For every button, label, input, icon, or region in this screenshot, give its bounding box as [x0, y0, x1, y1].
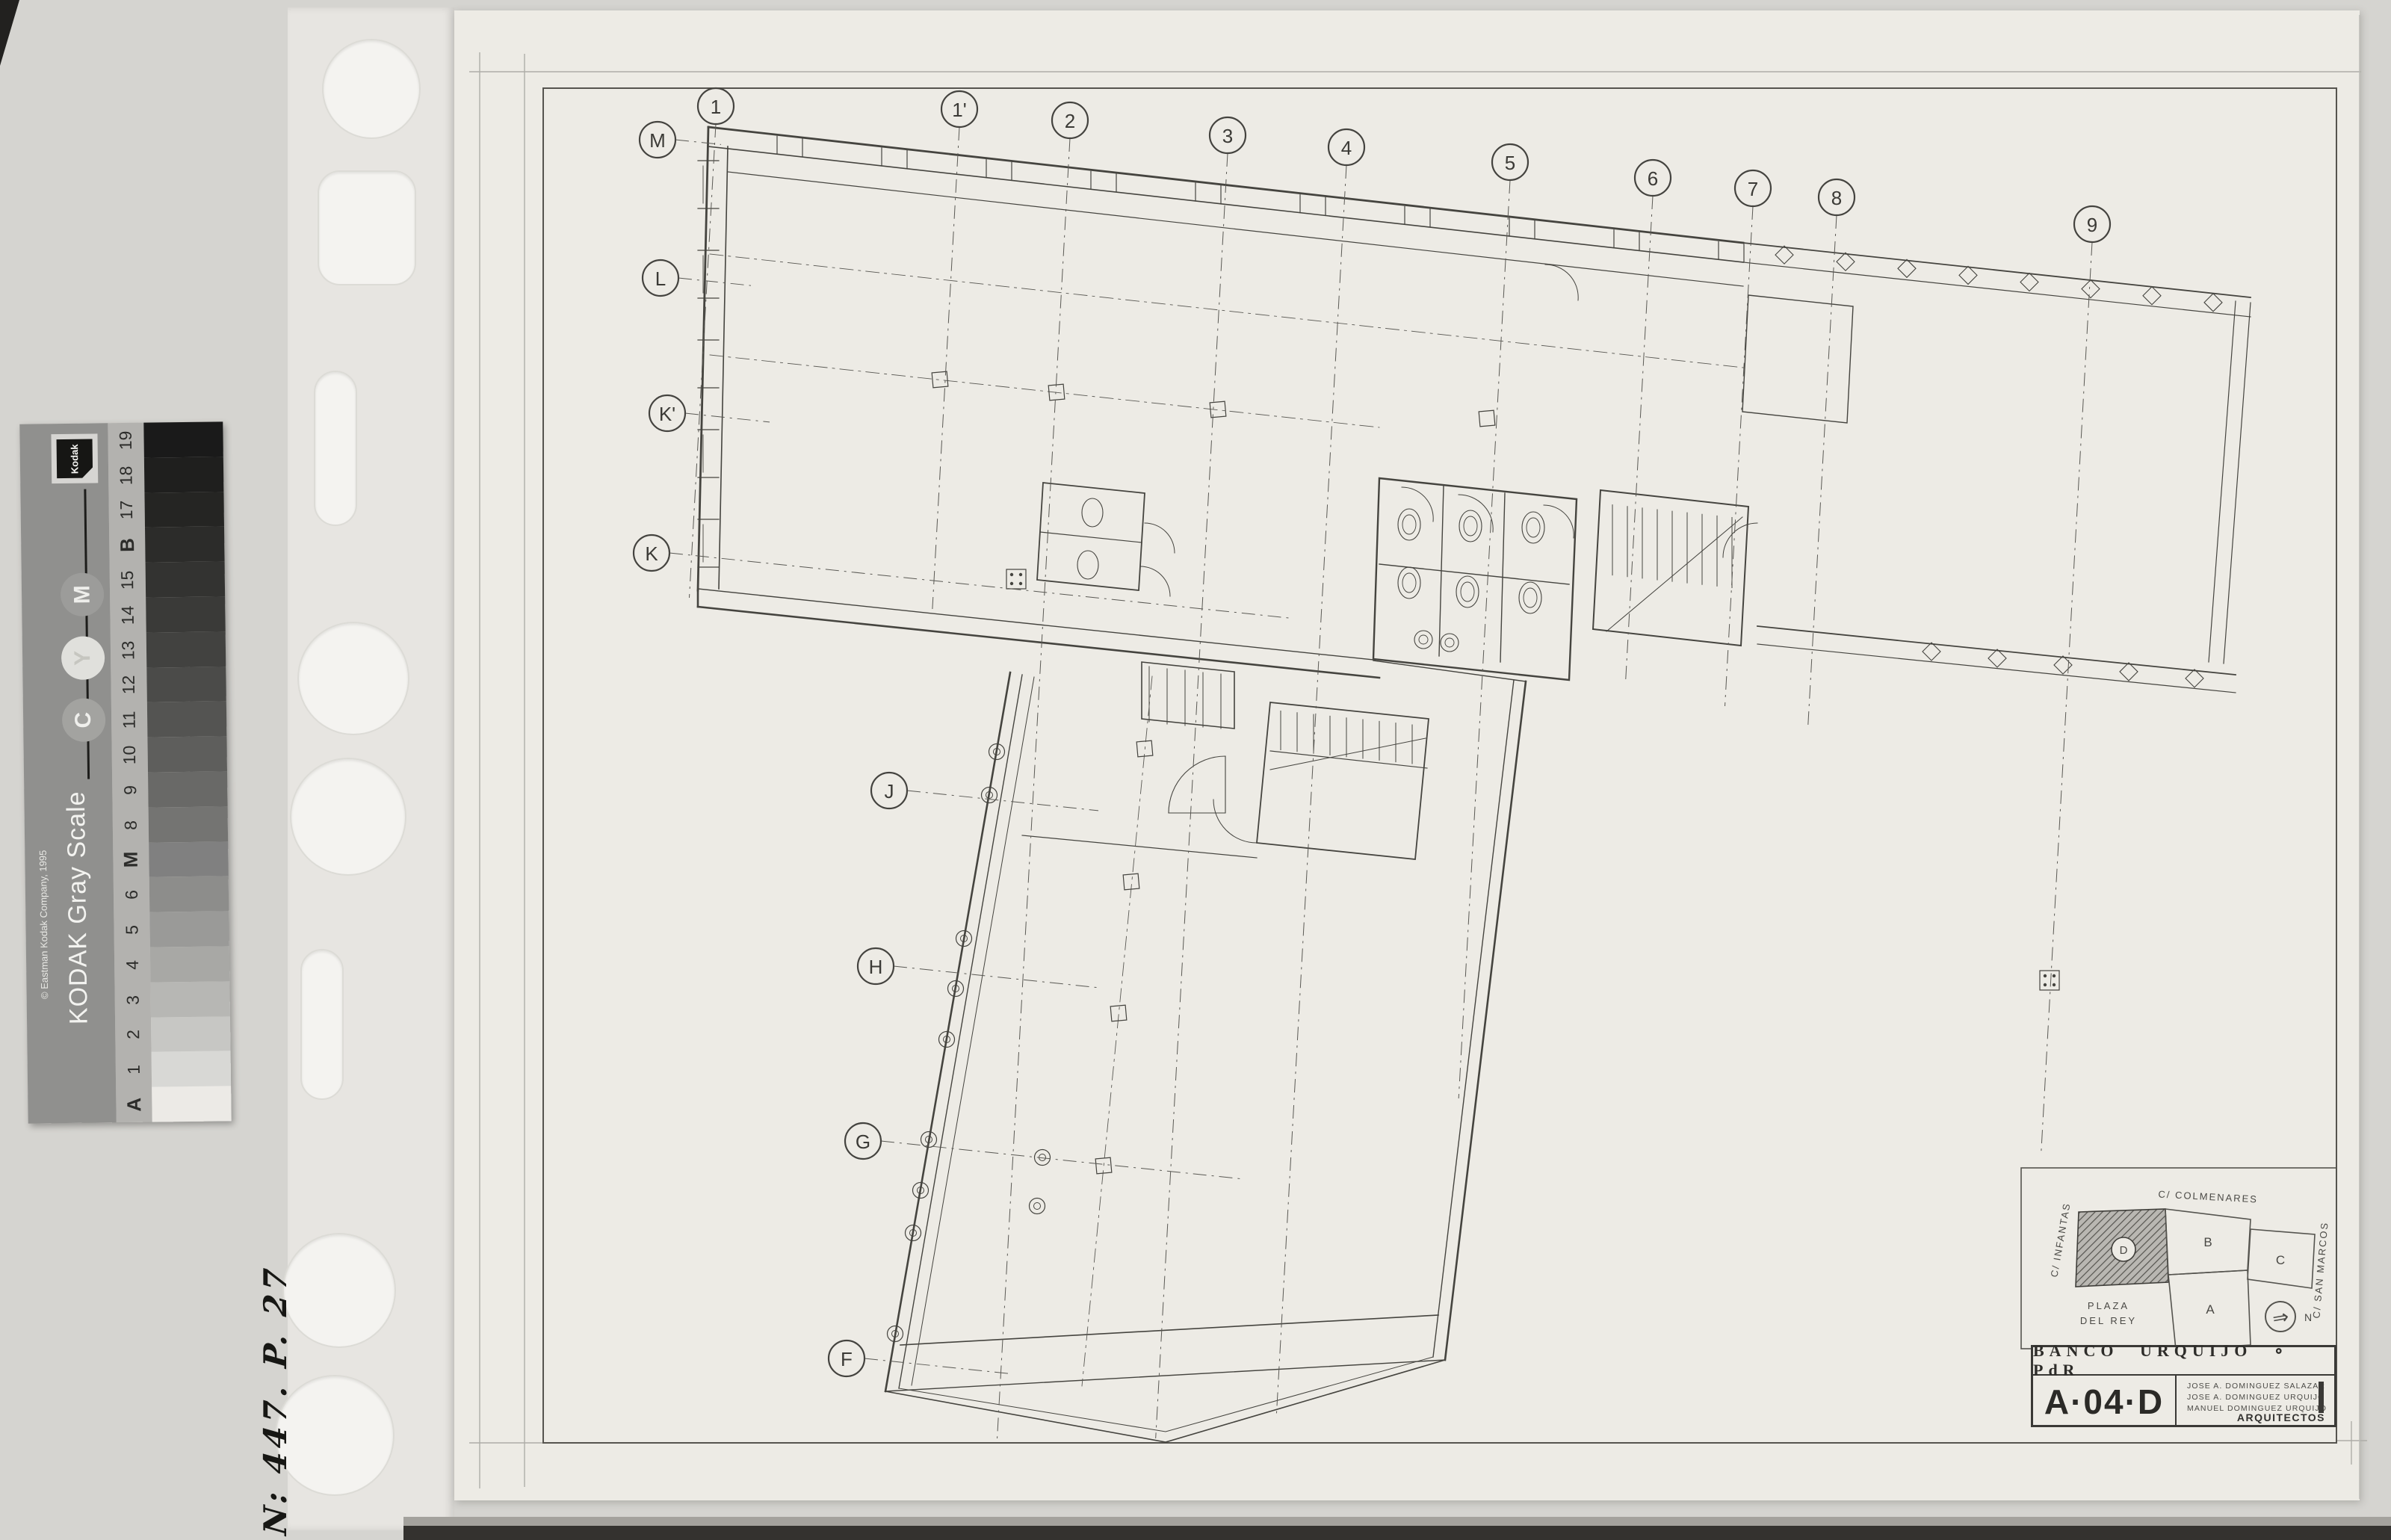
grid-column-label: 1' — [952, 99, 966, 121]
architects-role: ARQUITECTOS — [2237, 1411, 2325, 1423]
project-title: BANCO URQUIJO ∘ PdR — [2033, 1347, 2334, 1376]
color-control-m-icon: M — [61, 572, 105, 616]
patch-label: 18 — [108, 457, 145, 492]
patch-label: M — [113, 842, 149, 877]
site-block-b: B — [2203, 1235, 2212, 1249]
gray-patch — [149, 841, 229, 877]
gray-patch — [151, 1016, 231, 1052]
patch-label: 4 — [114, 947, 151, 983]
plan-symbols — [698, 136, 2222, 1341]
gray-patch — [146, 667, 226, 702]
grid-row-label: H — [869, 956, 883, 978]
drawing-border — [543, 88, 2336, 1443]
kodak-gray-scale-strip: Kodak M Y C KODAK Gray Scale © Eastman K… — [19, 421, 231, 1123]
gray-patch — [148, 771, 228, 807]
grid-column-label: 3 — [1222, 125, 1233, 147]
patch-label: 19 — [108, 423, 144, 458]
patch-label: 5 — [114, 912, 150, 947]
patch-label: 14 — [110, 598, 146, 633]
gray-patch — [149, 911, 229, 947]
patch-label: 2 — [115, 1017, 152, 1052]
gray-patch — [150, 981, 230, 1017]
patch-label: B — [109, 528, 146, 563]
grid-row-label: L — [655, 268, 666, 290]
color-control-c-icon: C — [62, 698, 106, 742]
color-control-y-icon: Y — [61, 636, 105, 680]
gray-patch — [145, 527, 225, 563]
patch-label: 12 — [111, 667, 147, 702]
grid-row-label: J — [885, 780, 894, 803]
plaza-label-line2: DEL REY — [2080, 1315, 2137, 1326]
gray-patch — [146, 596, 226, 632]
street-label-top: C/ COLMENARES — [2158, 1189, 2258, 1205]
kodak-logo-icon: Kodak — [51, 433, 98, 483]
architect-name: JOSE A. DOMINGUEZ URQUIJO — [2187, 1392, 2327, 1403]
revision-bar — [2319, 1382, 2324, 1413]
grid-column-label: 7 — [1748, 178, 1758, 200]
sheet-code: A·04·D — [2033, 1376, 2177, 1427]
floor-plan — [698, 127, 2251, 1442]
patch-label: 6 — [114, 877, 150, 912]
gray-patch — [144, 457, 224, 492]
strip-body: Kodak M Y C KODAK Gray Scale © Eastman K… — [19, 423, 116, 1123]
grid-row-label: K' — [659, 403, 675, 425]
site-plan-key: C/ COLMENARES C/ INFANTAS C/ SAN MARCOS … — [2021, 1168, 2336, 1349]
title-block: BANCO URQUIJO ∘ PdR A·04·D JOSE A. DOMIN… — [2031, 1345, 2336, 1427]
strip-copyright-wrap: © Eastman Kodak Company, 1995 — [20, 812, 68, 1037]
grid-column-label: 5 — [1505, 152, 1515, 174]
plan-linework: 11'23456789MLK'KJHGF C/ COLMENARES C/ IN… — [0, 0, 2391, 1540]
gray-patch — [144, 492, 224, 528]
grid-column-label: 9 — [2087, 214, 2097, 236]
gray-patch — [149, 876, 229, 912]
archival-photo: 11'23456789MLK'KJHGF C/ COLMENARES C/ IN… — [0, 0, 2391, 1540]
patch-label: 11 — [111, 702, 148, 737]
patch-label: 1 — [116, 1052, 152, 1087]
plaza-label-line1: PLAZA — [2088, 1300, 2129, 1311]
kodak-logo-text: Kodak — [69, 444, 80, 474]
patch-chip-band — [143, 421, 231, 1122]
architects-cell: JOSE A. DOMINGUEZ SALAZAR JOSE A. DOMING… — [2177, 1376, 2334, 1427]
patch-label: 10 — [111, 737, 148, 773]
patch-label: 17 — [108, 492, 145, 528]
gray-patch — [150, 946, 230, 982]
grid-row-label: K — [645, 542, 658, 565]
site-block-d: D — [2120, 1244, 2128, 1257]
letter-m: M — [69, 585, 95, 604]
patch-label: A — [116, 1087, 152, 1122]
gray-patch — [152, 1086, 232, 1122]
gray-patch — [147, 702, 227, 737]
letter-c: C — [71, 712, 96, 729]
gray-patch — [147, 737, 227, 773]
strip-copyright: © Eastman Kodak Company, 1995 — [37, 850, 50, 1000]
gray-patch — [143, 421, 223, 457]
site-block-c: C — [2276, 1253, 2285, 1267]
handwritten-catalog-number: N: 447. P. 27 — [257, 1264, 294, 1537]
grid-row-label: F — [841, 1348, 853, 1370]
gray-patch — [146, 631, 226, 667]
gray-patch — [149, 806, 229, 842]
patch-label: 15 — [110, 563, 146, 598]
patch-label: 9 — [112, 773, 149, 808]
patch-label: 8 — [113, 807, 149, 842]
street-label-left: C/ INFANTAS — [2048, 1202, 2072, 1278]
grid-row-label: M — [649, 129, 666, 152]
letter-y: Y — [70, 650, 96, 665]
patch-label: 3 — [114, 982, 151, 1017]
grid-column-label: 4 — [1341, 137, 1352, 159]
north-label: N — [2304, 1311, 2312, 1323]
grid-bubbles: 11'23456789MLK'KJHGF — [634, 88, 2110, 1438]
grid-column-label: 6 — [1648, 167, 1658, 190]
gray-patch — [146, 562, 226, 598]
site-block-a: A — [2206, 1302, 2215, 1317]
street-label-right: C/ SAN MARCOS — [2310, 1221, 2330, 1319]
grid-column-label: 2 — [1065, 110, 1075, 132]
north-arrow-icon: ⇒ — [2271, 1305, 2291, 1329]
grid-column-label: 8 — [1831, 187, 1842, 209]
grid-column-label: 1 — [711, 96, 721, 118]
patch-label: 13 — [111, 632, 147, 667]
gray-patch — [152, 1051, 232, 1087]
architect-name: JOSE A. DOMINGUEZ SALAZAR — [2187, 1381, 2327, 1392]
grid-row-label: G — [856, 1131, 870, 1153]
